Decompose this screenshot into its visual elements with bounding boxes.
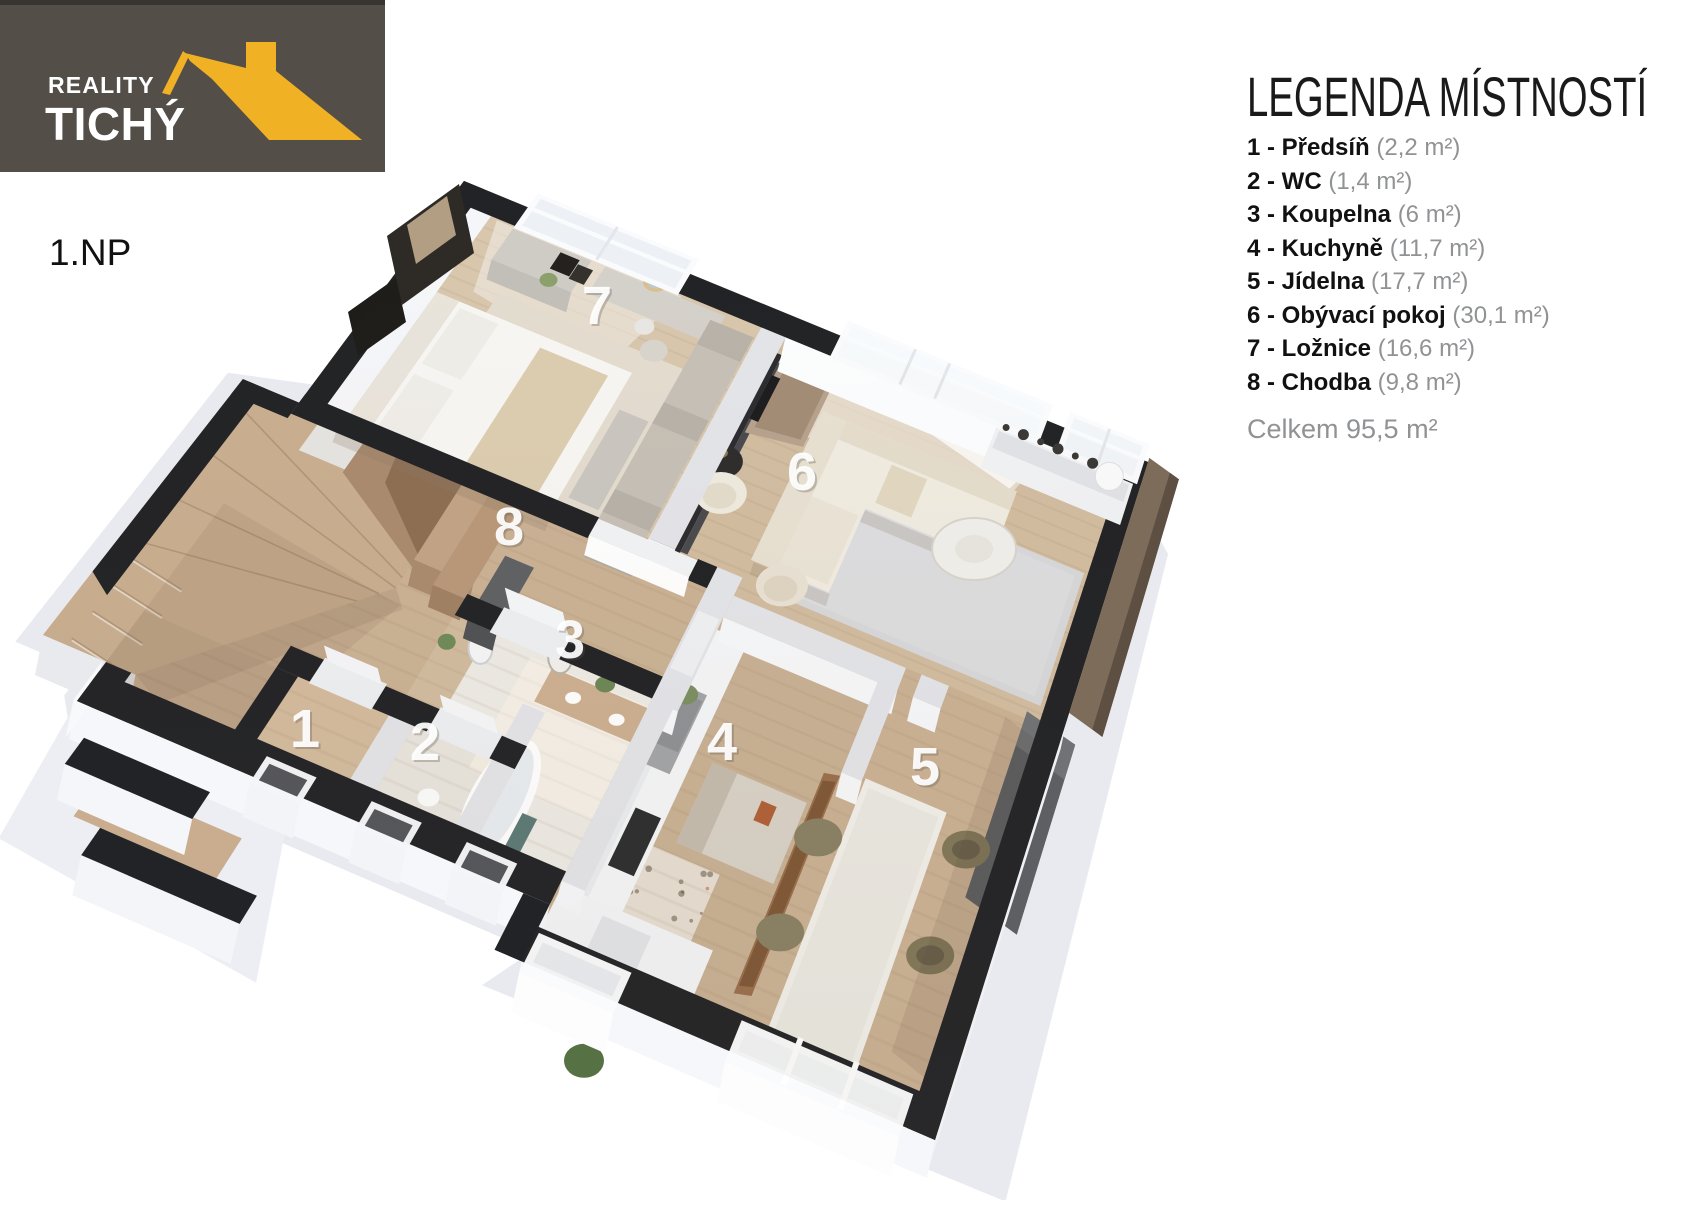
svg-text:6: 6 <box>787 442 817 502</box>
svg-text:8: 8 <box>494 497 524 557</box>
svg-text:5: 5 <box>910 737 940 797</box>
svg-text:3: 3 <box>555 610 585 670</box>
svg-text:4: 4 <box>707 712 737 772</box>
svg-text:2: 2 <box>410 712 440 772</box>
svg-text:7: 7 <box>582 276 612 336</box>
svg-text:1: 1 <box>290 699 320 759</box>
